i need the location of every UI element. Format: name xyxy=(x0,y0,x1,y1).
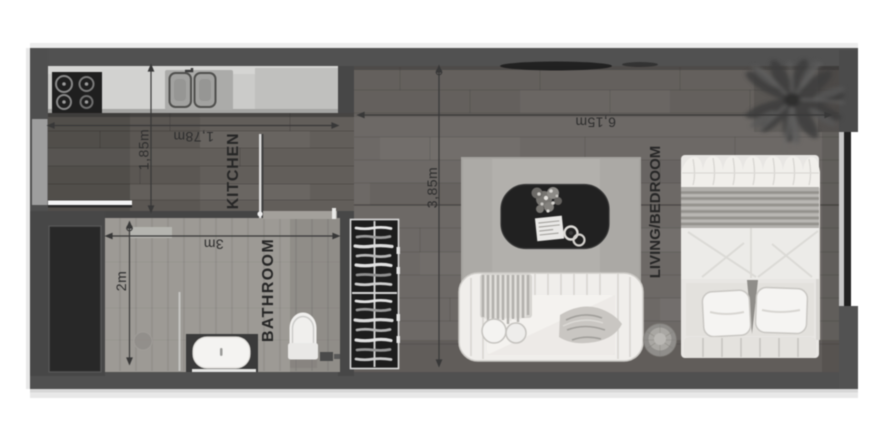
svg-text:1,85m: 1,85m xyxy=(136,129,152,170)
svg-text:LIVING/BEDROOM: LIVING/BEDROOM xyxy=(647,146,664,279)
svg-text:BATHROOM: BATHROOM xyxy=(260,238,277,342)
svg-text:3,85m: 3,85m xyxy=(424,167,440,208)
svg-text:3m: 3m xyxy=(203,237,223,253)
svg-text:6,15m: 6,15m xyxy=(575,115,616,131)
svg-text:1,78m: 1,78m xyxy=(173,129,214,145)
svg-text:2m: 2m xyxy=(113,271,129,291)
svg-text:KITCHEN: KITCHEN xyxy=(225,133,242,210)
